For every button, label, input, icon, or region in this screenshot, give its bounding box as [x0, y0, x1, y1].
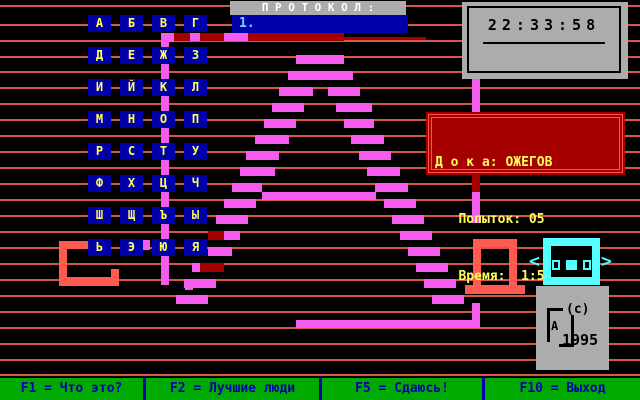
- art-block: [336, 103, 372, 112]
- art-block: [192, 263, 200, 272]
- art-block: [184, 279, 216, 288]
- protocol-title: П Р О Т О К О Л :: [230, 1, 406, 15]
- art-block: [224, 231, 240, 240]
- letter-tile-Ь[interactable]: Ь: [88, 239, 111, 256]
- letter-tile-Э[interactable]: Э: [120, 239, 143, 256]
- art-block: [328, 87, 360, 96]
- letter-tile-З[interactable]: З: [184, 47, 207, 64]
- art-block: [246, 151, 279, 160]
- status-attempts-line: Попыток: 05: [435, 210, 552, 229]
- clock-frame: 22:33:58: [467, 6, 621, 73]
- art-block: [272, 103, 304, 112]
- art-block: [344, 119, 374, 128]
- letter-tile-П[interactable]: П: [184, 111, 207, 128]
- letter-tile-Ч[interactable]: Ч: [184, 175, 207, 192]
- letter-tile-Ъ[interactable]: Ъ: [152, 207, 175, 224]
- cursor-box[interactable]: [543, 238, 600, 285]
- copyright-year: 1995: [562, 331, 598, 349]
- art-block: [384, 199, 416, 208]
- protocol-entry: 1.: [232, 15, 408, 33]
- art-block: [190, 33, 200, 41]
- letter-tile-Л[interactable]: Л: [184, 79, 207, 96]
- function-key-bar: F1 = Что это?F2 = Лучшие людиF5 = Сдаюсь…: [0, 378, 640, 400]
- letter-tile-Щ[interactable]: Щ: [120, 207, 143, 224]
- art-block: [208, 231, 224, 240]
- letter-tile-Ж[interactable]: Ж: [152, 47, 175, 64]
- art-block: [367, 167, 400, 176]
- fn-key-f1[interactable]: F1 = Что это?: [0, 378, 146, 400]
- art-block: [216, 215, 248, 224]
- clock-time: 22:33:58: [469, 16, 619, 34]
- letter-tile-К[interactable]: К: [152, 79, 175, 96]
- letter-tile-Д[interactable]: Д: [88, 47, 111, 64]
- cursor-dot-left: [552, 260, 560, 270]
- letter-tile-Р[interactable]: Р: [88, 143, 111, 160]
- letter-tile-У[interactable]: У: [184, 143, 207, 160]
- cursor-arrow-left-icon[interactable]: <: [529, 253, 540, 271]
- letter-tile-Т[interactable]: Т: [152, 143, 175, 160]
- art-block: [111, 269, 119, 286]
- letter-tile-Ы[interactable]: Ы: [184, 207, 207, 224]
- art-block: [208, 247, 232, 256]
- clock-panel: 22:33:58: [462, 2, 628, 79]
- art-block: [400, 231, 432, 240]
- art-block: [224, 199, 256, 208]
- letter-tile-Я[interactable]: Я: [184, 239, 207, 256]
- art-block: [255, 135, 289, 144]
- letter-tile-С[interactable]: С: [120, 143, 143, 160]
- letter-tile-Ф[interactable]: Ф: [88, 175, 111, 192]
- art-block: [359, 151, 391, 160]
- letter-tile-Б[interactable]: Б: [120, 15, 143, 32]
- letter-tile-Ю[interactable]: Ю: [152, 239, 175, 256]
- art-block: [264, 119, 296, 128]
- letter-tile-Е[interactable]: Е: [120, 47, 143, 64]
- cursor-dot-center: [566, 260, 577, 270]
- status-panel: Д о к а: ОЖЕГОВ Попыток: 05 Время: 1:57: [426, 112, 625, 175]
- copyright-box: А (c) 1995: [536, 286, 609, 370]
- status-lines: Д о к а: ОЖЕГОВ Попыток: 05 Время: 1:57: [435, 115, 552, 324]
- art-block: [392, 215, 424, 224]
- letter-tile-О[interactable]: О: [152, 111, 175, 128]
- letter-tile-Ц[interactable]: Ц: [152, 175, 175, 192]
- game-screen: АБВГДЕЖЗИЙКЛМНОПРСТУФХЦЧШЩЪЫЬЭЮЯ П Р О Т…: [0, 0, 640, 400]
- art-block: [59, 277, 119, 286]
- copyright-symbol: (c): [566, 302, 589, 317]
- letter-tile-А[interactable]: А: [88, 15, 111, 32]
- letter-tile-М[interactable]: М: [88, 111, 111, 128]
- art-block: [375, 183, 408, 192]
- art-block: [472, 78, 480, 113]
- art-block: [288, 71, 353, 80]
- art-block: [200, 263, 224, 272]
- art-block: [296, 55, 344, 64]
- bg-line: [0, 103, 640, 105]
- art-block: [224, 33, 248, 41]
- art-block: [279, 87, 313, 96]
- fn-key-f5[interactable]: F5 = Сдаюсь!: [322, 378, 485, 400]
- cursor-arrow-right-icon[interactable]: >: [601, 253, 612, 271]
- clock-underline: [483, 42, 605, 44]
- art-block: [351, 135, 384, 144]
- fn-key-f2[interactable]: F2 = Лучшие люди: [146, 378, 322, 400]
- art-block: [176, 295, 208, 304]
- art-block: [344, 37, 426, 40]
- letter-tile-Ш[interactable]: Ш: [88, 207, 111, 224]
- letter-tile-Й[interactable]: Й: [120, 79, 143, 96]
- fn-key-f10[interactable]: F10 = Выход: [485, 378, 640, 400]
- letter-tile-Г[interactable]: Г: [184, 15, 207, 32]
- letter-tile-Н[interactable]: Н: [120, 111, 143, 128]
- letter-tile-И[interactable]: И: [88, 79, 111, 96]
- letter-tile-В[interactable]: В: [152, 15, 175, 32]
- art-block: [232, 183, 262, 192]
- cursor-dot-right: [583, 260, 591, 270]
- art-block: [240, 167, 275, 176]
- bg-line: [0, 374, 640, 376]
- logo-letter: А: [551, 319, 558, 333]
- status-player-line: Д о к а: ОЖЕГОВ: [435, 153, 552, 172]
- art-block: [262, 192, 376, 200]
- letter-tile-Х[interactable]: Х: [120, 175, 143, 192]
